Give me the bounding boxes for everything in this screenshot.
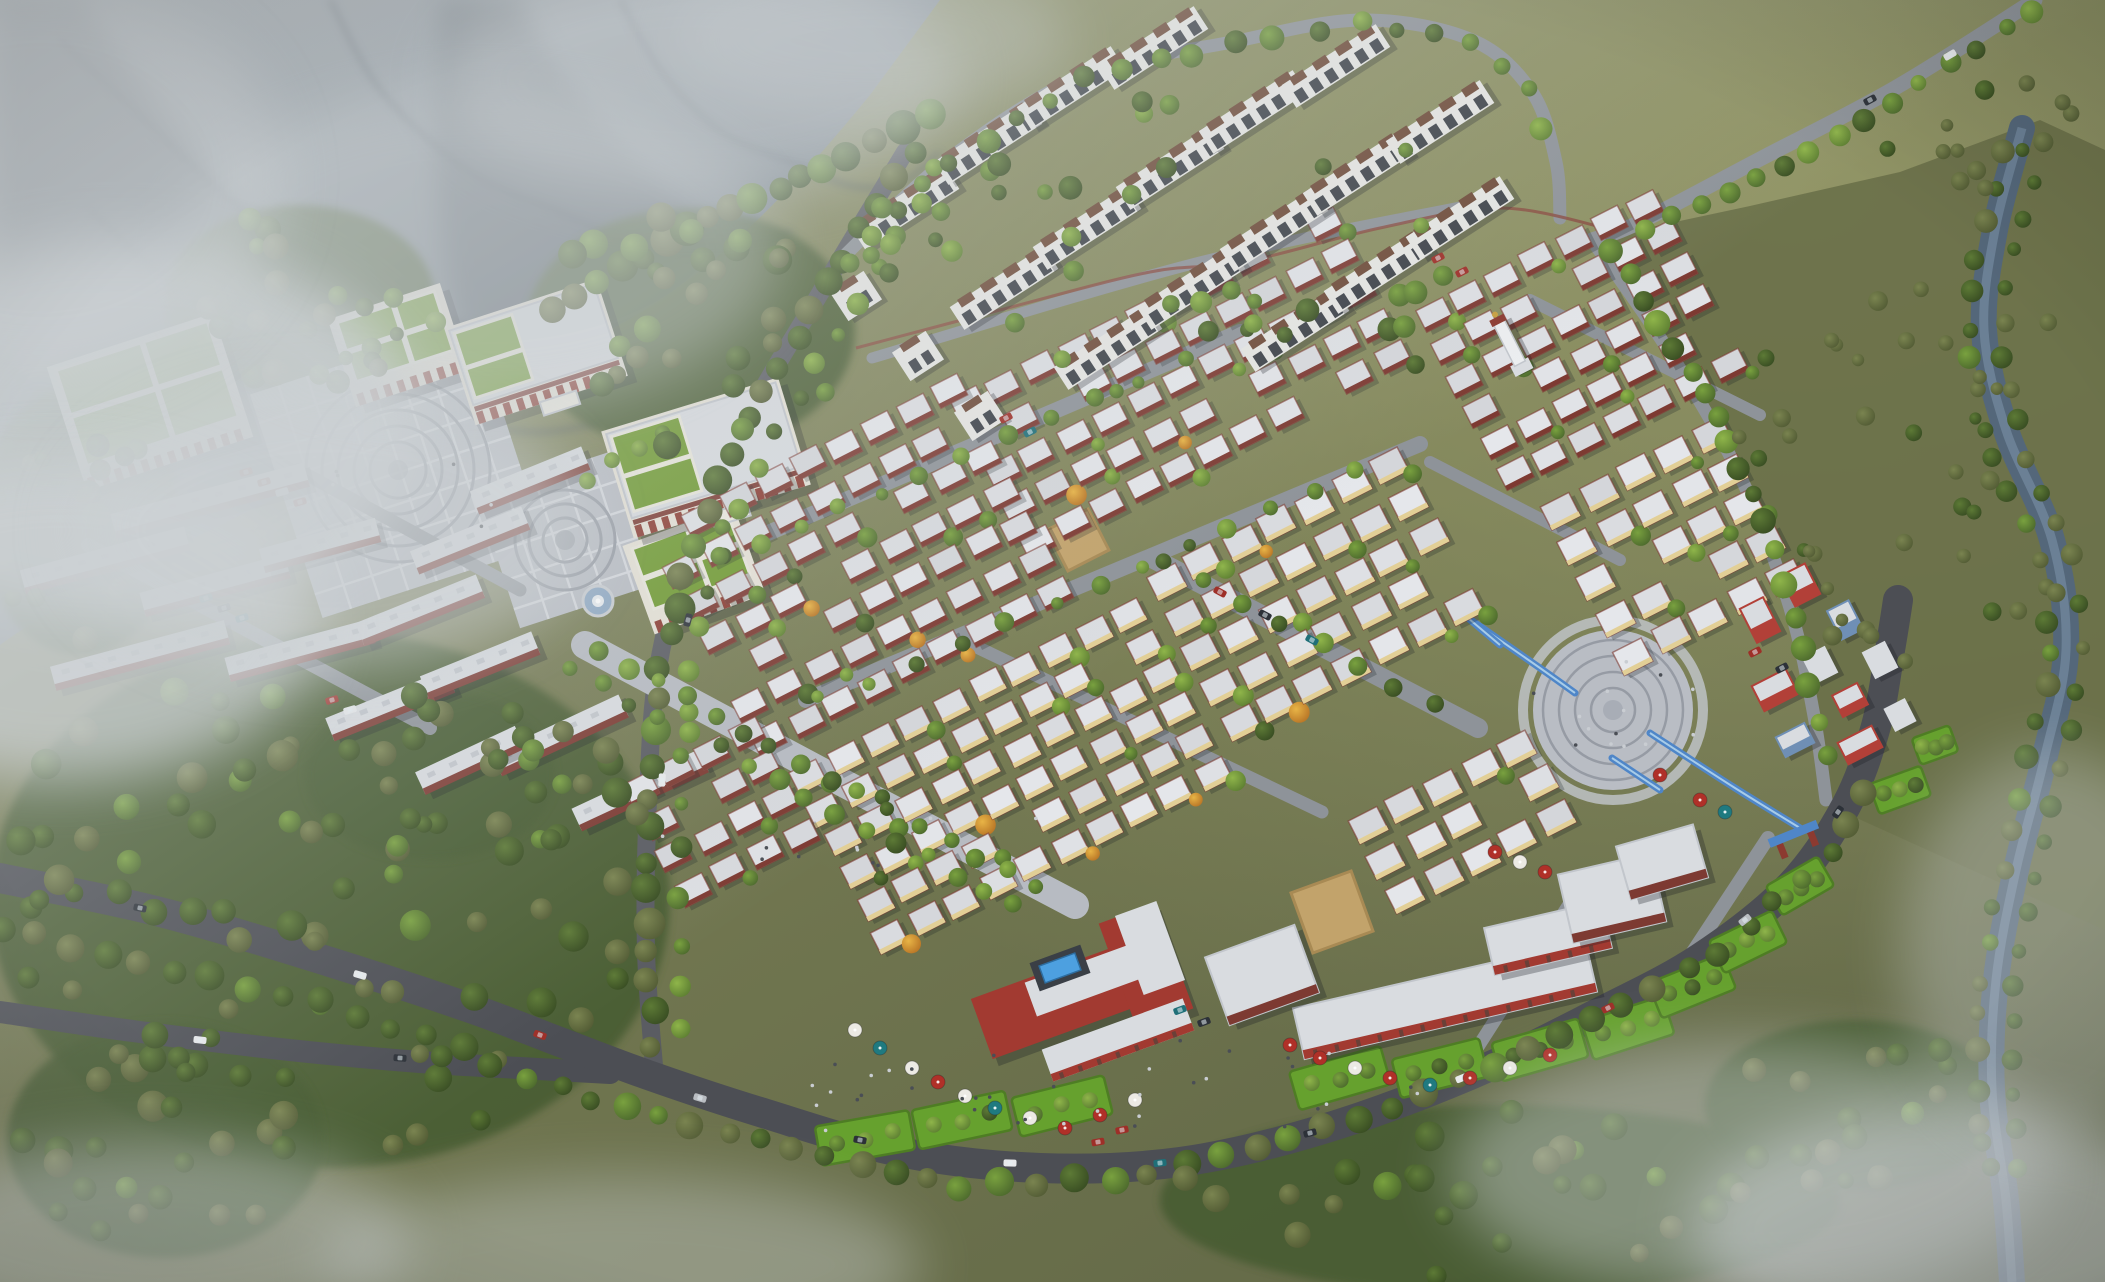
rendering-canvas <box>0 0 2105 1282</box>
fog-layer <box>0 0 2105 1282</box>
vignette <box>0 0 2105 1282</box>
aerial-town-rendering <box>0 0 2105 1282</box>
